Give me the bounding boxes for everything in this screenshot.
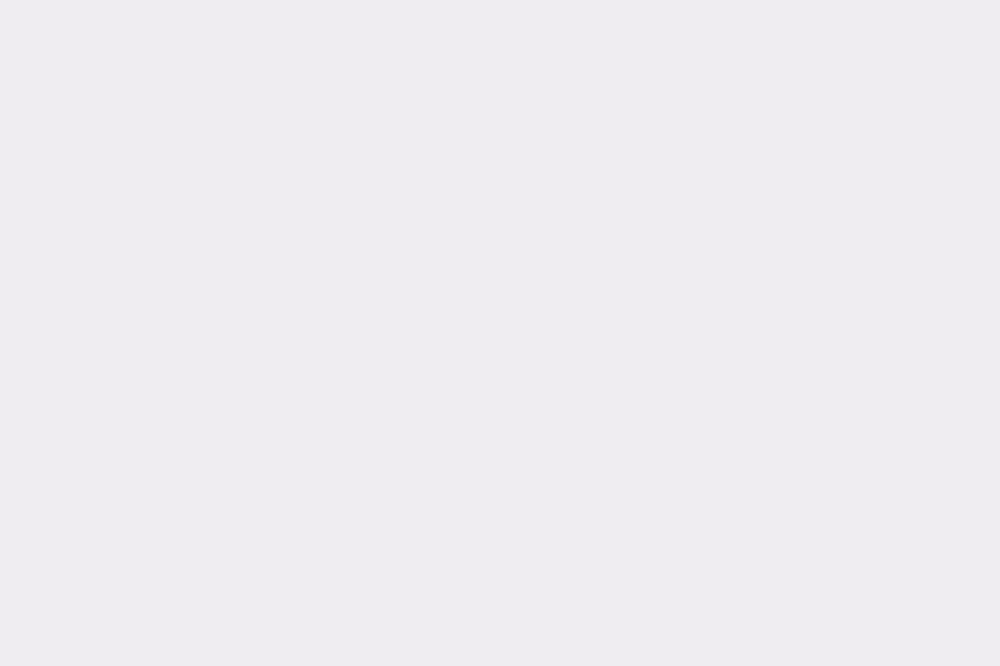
scene-canvas [0,0,1000,666]
photo-scene: SOAK TUB ATTIC MASTER BATH PATIO DOUBLE … [0,0,1000,666]
